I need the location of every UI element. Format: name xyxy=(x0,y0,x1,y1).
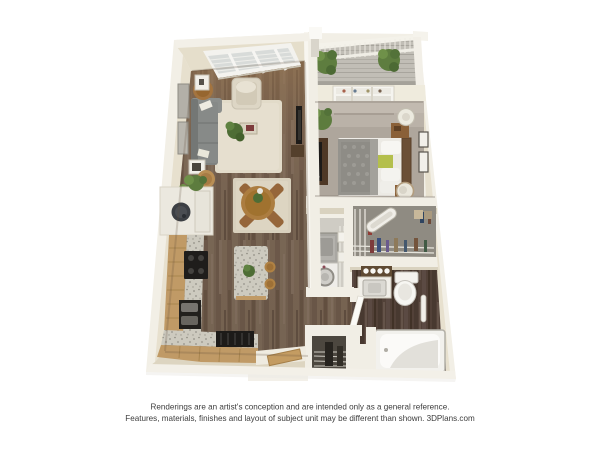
svg-text:Renderings are an artist's con: Renderings are an artist's conception an… xyxy=(151,403,450,412)
svg-text:Features, materials, finishes: Features, materials, finishes and layout… xyxy=(125,414,475,423)
